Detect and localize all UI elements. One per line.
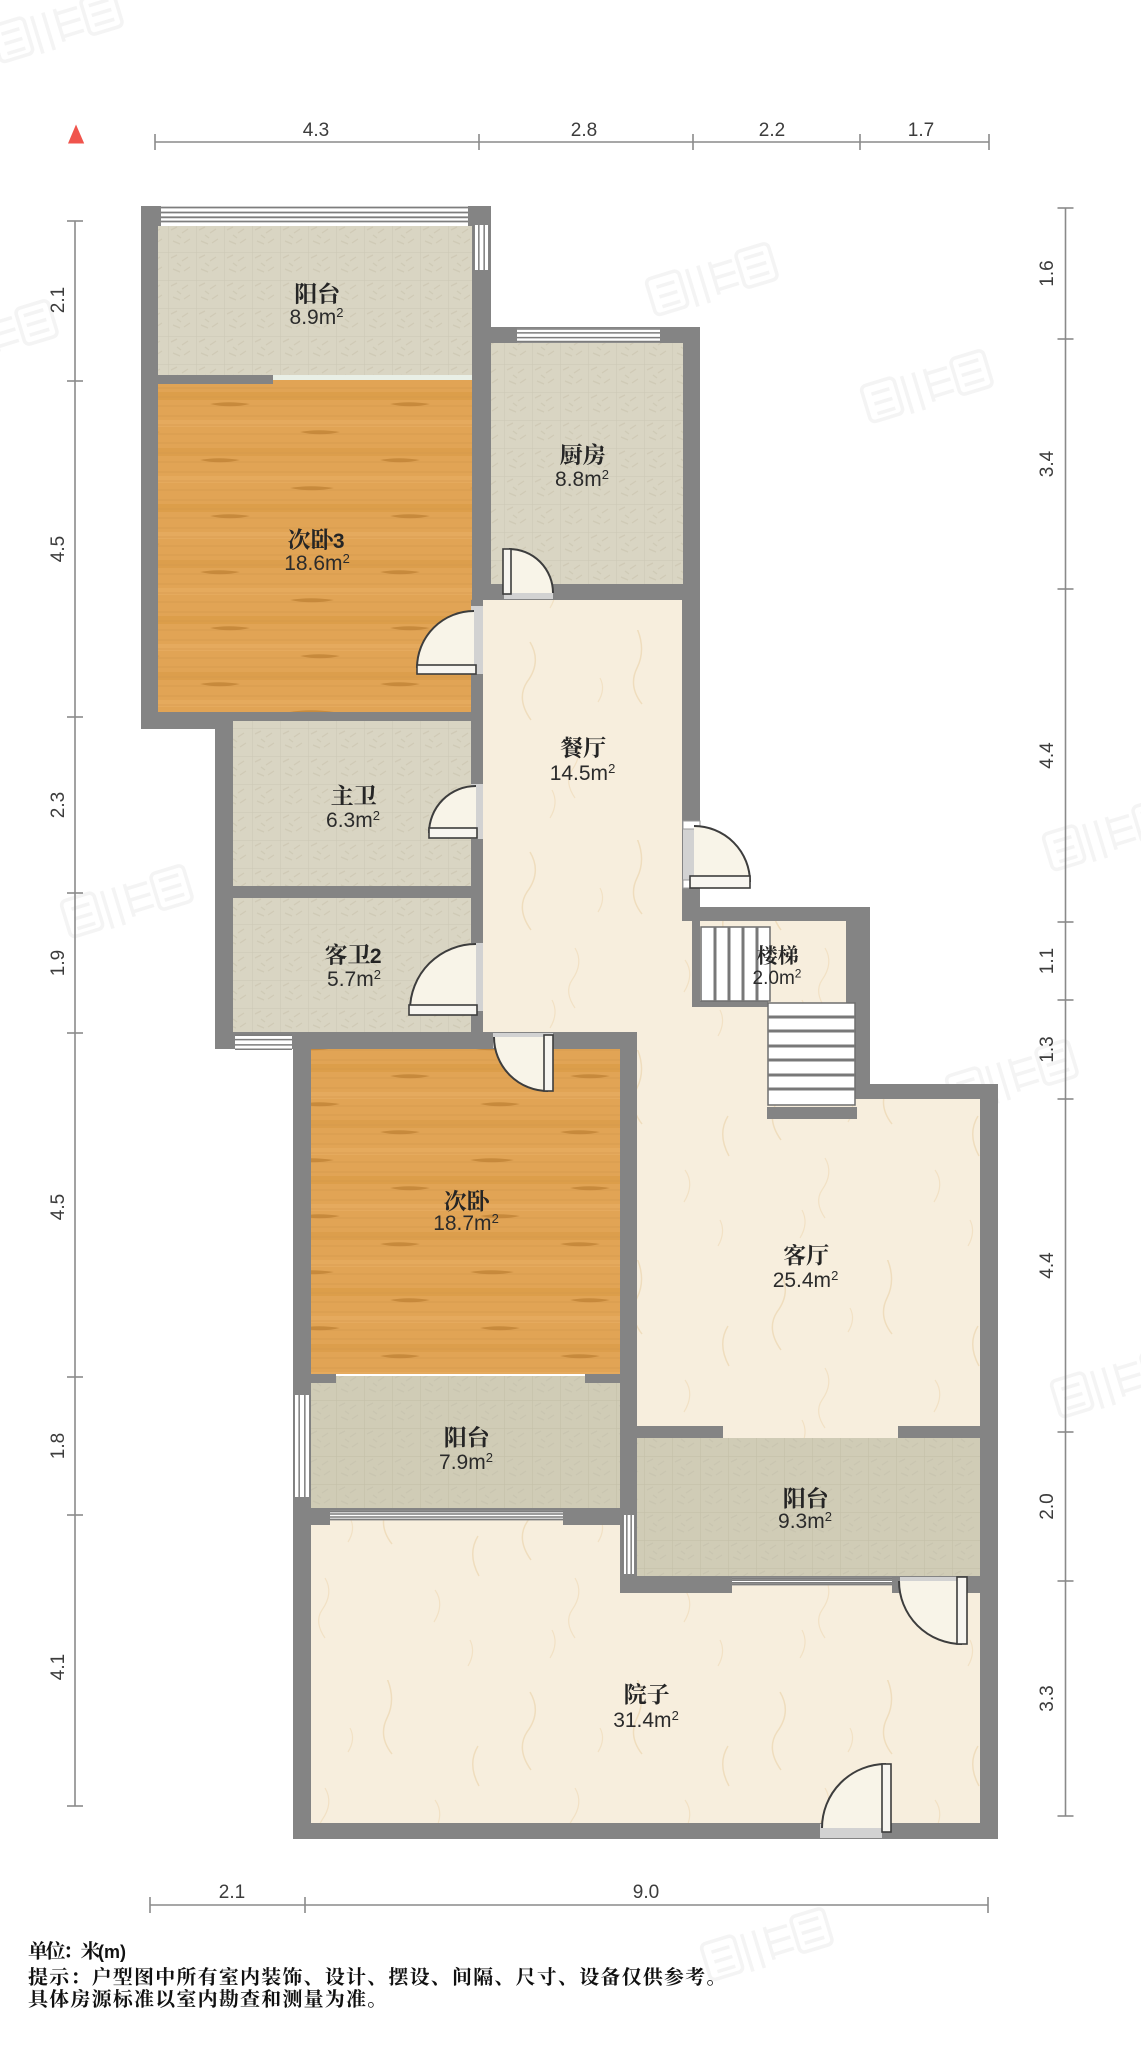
svg-text:2.0m2: 2.0m2 — [753, 967, 802, 989]
svg-text:1.9: 1.9 — [48, 950, 69, 976]
svg-text:4.1: 4.1 — [48, 1654, 69, 1680]
svg-text:8.8m2: 8.8m2 — [555, 467, 609, 491]
svg-text:6.3m2: 6.3m2 — [326, 808, 380, 832]
svg-text:9.0: 9.0 — [633, 1882, 659, 1903]
svg-text:18.7m2: 18.7m2 — [433, 1211, 499, 1235]
svg-text:1.3: 1.3 — [1037, 1036, 1058, 1062]
svg-text:4.5: 4.5 — [48, 1194, 69, 1220]
svg-text:2.8: 2.8 — [571, 120, 597, 141]
svg-text:(m): (m) — [98, 1942, 126, 1962]
svg-text:31.4m2: 31.4m2 — [613, 1708, 679, 1732]
svg-text:3.3: 3.3 — [1037, 1685, 1058, 1711]
svg-text:2.1: 2.1 — [219, 1882, 245, 1903]
svg-text:8.9m2: 8.9m2 — [290, 305, 344, 329]
svg-text:4.5: 4.5 — [48, 536, 69, 562]
svg-text:1.7: 1.7 — [908, 120, 934, 141]
svg-text:2: 2 — [370, 945, 382, 968]
svg-text:4.4: 4.4 — [1037, 742, 1058, 769]
svg-text:2.3: 2.3 — [48, 792, 69, 818]
svg-text:25.4m2: 25.4m2 — [773, 1268, 839, 1292]
svg-text:18.6m2: 18.6m2 — [284, 551, 350, 575]
svg-text:2.0: 2.0 — [1037, 1493, 1058, 1519]
svg-text:3.4: 3.4 — [1037, 450, 1058, 477]
svg-text:5.7m2: 5.7m2 — [327, 967, 381, 991]
svg-text:4.4: 4.4 — [1037, 1252, 1058, 1279]
svg-text:7.9m2: 7.9m2 — [439, 1450, 493, 1474]
svg-text:1.1: 1.1 — [1037, 948, 1058, 974]
svg-text:1.8: 1.8 — [48, 1433, 69, 1459]
svg-text:14.5m2: 14.5m2 — [550, 761, 616, 785]
svg-text:4.3: 4.3 — [303, 120, 329, 141]
svg-text:2.1: 2.1 — [48, 287, 69, 313]
svg-text:2.2: 2.2 — [759, 120, 785, 141]
svg-text:9.3m2: 9.3m2 — [778, 1509, 832, 1533]
svg-text:3: 3 — [333, 530, 345, 553]
svg-text:1.6: 1.6 — [1037, 260, 1058, 286]
